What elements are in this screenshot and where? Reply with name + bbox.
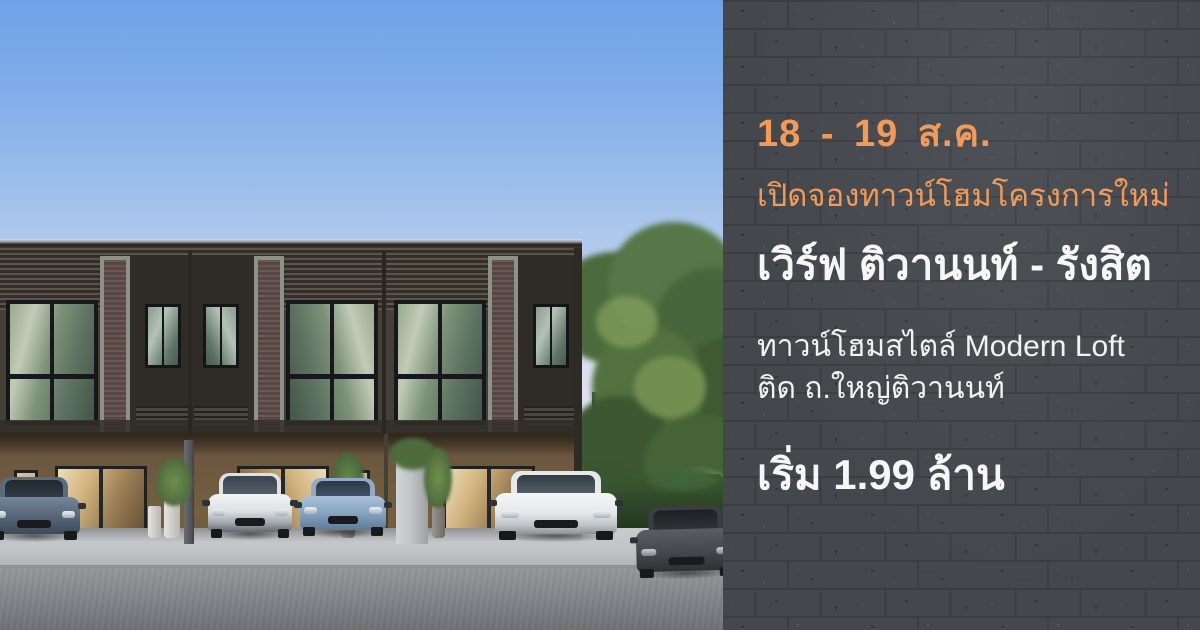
promo-banner: 18 - 19 ส.ค. เปิดจองทาวน์โฮมโครงการใหม่ … bbox=[0, 0, 1200, 630]
small-window bbox=[145, 304, 181, 368]
headlight bbox=[641, 549, 656, 556]
project-description: ทาวน์โฮมสไตล์ Modern Loft ติด ถ.ใหญ่ติวา… bbox=[757, 326, 1190, 410]
headlight bbox=[62, 511, 76, 518]
wheel bbox=[371, 527, 383, 536]
side-mirror bbox=[78, 503, 86, 509]
car-dark-sedan bbox=[635, 505, 723, 576]
headlight bbox=[212, 509, 225, 516]
plant-pot bbox=[148, 506, 161, 538]
project-name: เวิร์ฟ ติวานนท์ - รังสิต bbox=[757, 236, 1190, 295]
unit-divider bbox=[382, 250, 386, 434]
plant-pot bbox=[432, 506, 445, 538]
side-mirror bbox=[630, 537, 638, 543]
headlight bbox=[716, 547, 723, 554]
upper-window bbox=[394, 300, 486, 425]
townhome-photo bbox=[0, 0, 723, 630]
road bbox=[0, 568, 723, 630]
headlight bbox=[593, 511, 611, 518]
tree-canopy bbox=[596, 296, 658, 348]
car-blue-sedan bbox=[300, 478, 386, 533]
small-window bbox=[533, 304, 569, 368]
headlight bbox=[501, 511, 519, 518]
grille bbox=[328, 516, 359, 524]
headlight bbox=[275, 509, 288, 516]
panel-text: 18 - 19 ส.ค. เปิดจองทาวน์โฮมโครงการใหม่ … bbox=[723, 0, 1200, 630]
roof-line bbox=[0, 239, 582, 248]
wheel bbox=[0, 531, 4, 540]
grille bbox=[534, 520, 578, 528]
grille bbox=[668, 557, 704, 566]
wheel bbox=[499, 531, 516, 540]
wheel bbox=[640, 569, 654, 578]
side-mirror bbox=[615, 500, 623, 506]
small-window bbox=[203, 304, 239, 368]
upper-window bbox=[6, 300, 98, 425]
wheel bbox=[278, 529, 290, 538]
event-date: 18 - 19 ส.ค. bbox=[757, 108, 1190, 161]
side-mirror bbox=[384, 502, 392, 508]
starting-price: เริ่ม 1.99 ล้าน bbox=[757, 446, 1190, 505]
description-line-1: ทาวน์โฮมสไตล์ Modern Loft bbox=[757, 330, 1125, 363]
grille bbox=[235, 518, 265, 526]
potted-plant bbox=[424, 448, 452, 508]
wheel bbox=[596, 531, 613, 540]
grille bbox=[17, 520, 50, 528]
floor-divider-band bbox=[0, 420, 582, 434]
planter-wall bbox=[396, 458, 428, 544]
tree-canopy bbox=[634, 356, 706, 418]
side-mirror bbox=[294, 502, 302, 508]
wheel bbox=[64, 531, 77, 540]
headlight bbox=[369, 507, 382, 514]
car-white-crossover bbox=[208, 473, 292, 535]
description-line-2: ติด ถ.ใหญ่ติวานนท์ bbox=[757, 372, 1005, 405]
car-white-suv bbox=[495, 471, 617, 537]
car-mini bbox=[0, 477, 80, 537]
side-mirror bbox=[202, 500, 210, 506]
headlight bbox=[304, 507, 317, 514]
potted-plant bbox=[156, 458, 192, 506]
info-panel: 18 - 19 ส.ค. เปิดจองทาวน์โฮมโครงการใหม่ … bbox=[723, 0, 1200, 630]
wheel bbox=[211, 529, 223, 538]
wheel bbox=[303, 527, 315, 536]
side-mirror bbox=[489, 500, 497, 506]
announcement-line: เปิดจองทาวน์โฮมโครงการใหม่ bbox=[757, 174, 1190, 217]
upper-window bbox=[286, 300, 378, 425]
unit-divider bbox=[188, 250, 192, 434]
